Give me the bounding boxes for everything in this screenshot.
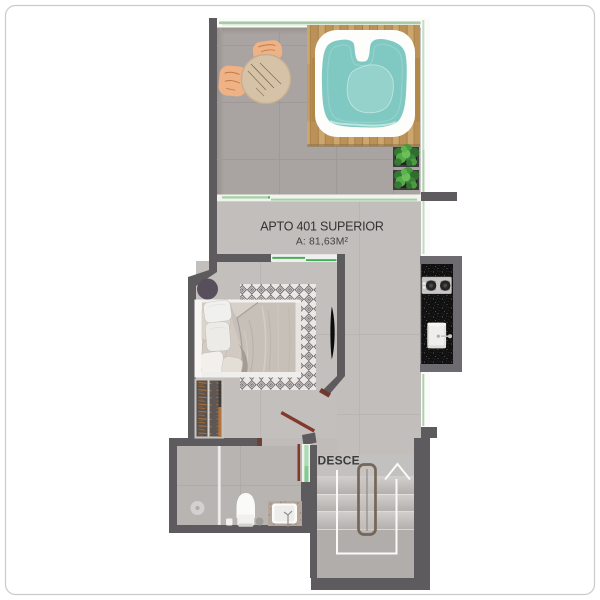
svg-text:APTO 401 SUPERIOR: APTO 401 SUPERIOR [260, 220, 384, 234]
svg-text:DESCE: DESCE [318, 454, 360, 468]
svg-text:A: 81,63M²: A: 81,63M² [296, 237, 349, 248]
